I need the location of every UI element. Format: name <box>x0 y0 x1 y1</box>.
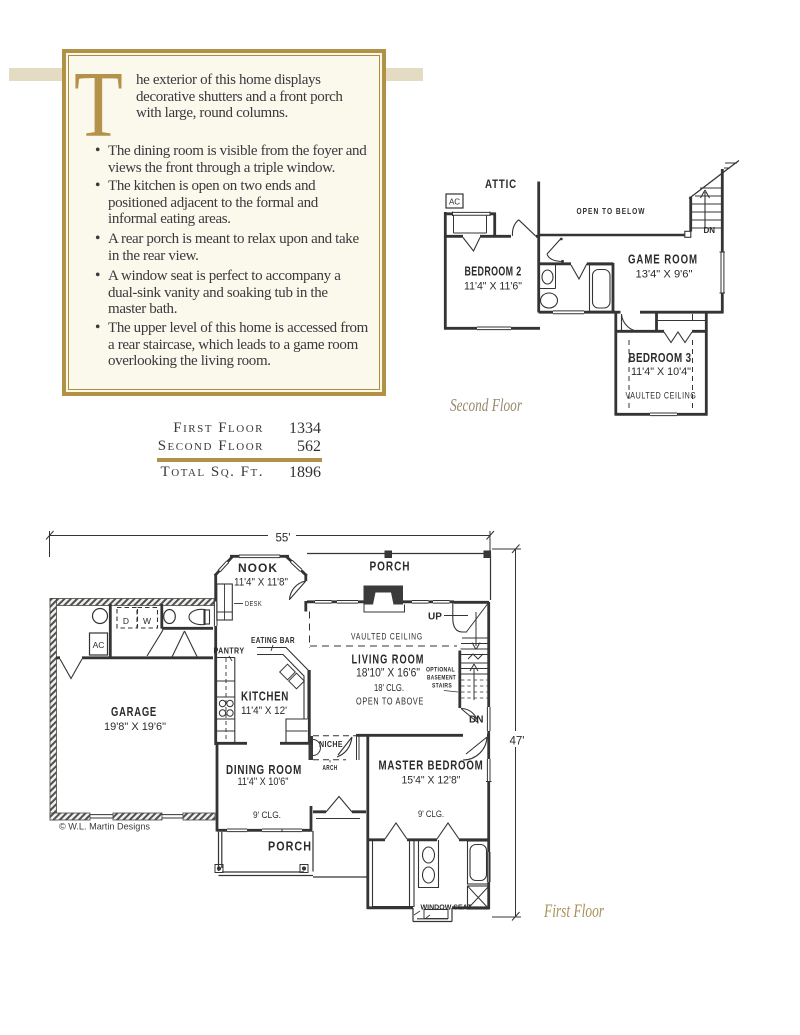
svg-text:BEDROOM 2: BEDROOM 2 <box>465 265 522 279</box>
svg-text:AC: AC <box>449 198 460 207</box>
svg-text:VAULTED CEILING: VAULTED CEILING <box>351 632 423 643</box>
svg-text:KITCHEN: KITCHEN <box>241 690 289 704</box>
svg-text:PORCH: PORCH <box>370 560 411 574</box>
svg-text:19'8" X 19'6": 19'8" X 19'6" <box>104 721 166 733</box>
svg-text:DESK: DESK <box>245 599 262 608</box>
svg-text:WINDOW SEAT: WINDOW SEAT <box>421 903 472 912</box>
svg-text:OPEN TO ABOVE: OPEN TO ABOVE <box>356 696 424 708</box>
svg-text:11'4" X 11'8": 11'4" X 11'8" <box>234 577 288 589</box>
svg-text:OPEN TO BELOW: OPEN TO BELOW <box>577 206 646 216</box>
svg-text:18' CLG.: 18' CLG. <box>374 683 404 694</box>
svg-text:Second Floor: Second Floor <box>450 395 523 415</box>
svg-text:15'4" X 12'8": 15'4" X 12'8" <box>402 775 461 787</box>
svg-text:GARAGE: GARAGE <box>111 705 157 719</box>
svg-text:11'4" X 10'4": 11'4" X 10'4" <box>631 366 691 378</box>
svg-text:NICHE: NICHE <box>319 739 343 749</box>
svg-text:BASEMENT: BASEMENT <box>427 675 456 682</box>
svg-text:PANTRY: PANTRY <box>214 646 245 656</box>
svg-text:11'4" X 12': 11'4" X 12' <box>241 705 287 717</box>
svg-text:AC: AC <box>93 640 105 650</box>
svg-text:OPTIONAL: OPTIONAL <box>426 667 455 674</box>
svg-text:LIVING ROOM: LIVING ROOM <box>352 652 425 667</box>
svg-text:DINING ROOM: DINING ROOM <box>226 763 302 777</box>
svg-text:NOOK: NOOK <box>238 561 278 575</box>
svg-text:9' CLG.: 9' CLG. <box>418 809 444 820</box>
svg-text:11'4" X 10'6": 11'4" X 10'6" <box>238 776 289 788</box>
svg-text:47': 47' <box>510 736 525 748</box>
svg-text:11'4" X 11'6": 11'4" X 11'6" <box>464 281 522 293</box>
svg-text:VAULTED CEILING: VAULTED CEILING <box>626 391 697 402</box>
svg-text:18'10" X 16'6": 18'10" X 16'6" <box>356 668 420 680</box>
svg-text:DN: DN <box>704 226 716 235</box>
svg-text:EATING BAR: EATING BAR <box>251 635 295 645</box>
svg-text:D: D <box>123 616 129 626</box>
svg-text:UP: UP <box>428 612 442 623</box>
svg-text:ATTIC: ATTIC <box>485 179 517 191</box>
svg-text:BEDROOM 3: BEDROOM 3 <box>629 351 692 365</box>
svg-text:PORCH: PORCH <box>268 840 312 854</box>
svg-text:ARCH: ARCH <box>323 763 338 772</box>
svg-text:DN: DN <box>469 715 483 726</box>
svg-text:W: W <box>143 616 151 626</box>
svg-text:55': 55' <box>276 533 291 545</box>
svg-text:13'4" X 9'6": 13'4" X 9'6" <box>636 269 693 281</box>
svg-text:First Floor: First Floor <box>543 901 604 922</box>
svg-text:9' CLG.: 9' CLG. <box>253 810 281 821</box>
svg-text:MASTER BEDROOM: MASTER BEDROOM <box>379 759 484 773</box>
svg-text:© W.L. Martin Designs: © W.L. Martin Designs <box>59 822 150 833</box>
svg-text:STAIRS: STAIRS <box>432 683 452 690</box>
svg-text:GAME ROOM: GAME ROOM <box>628 253 698 267</box>
